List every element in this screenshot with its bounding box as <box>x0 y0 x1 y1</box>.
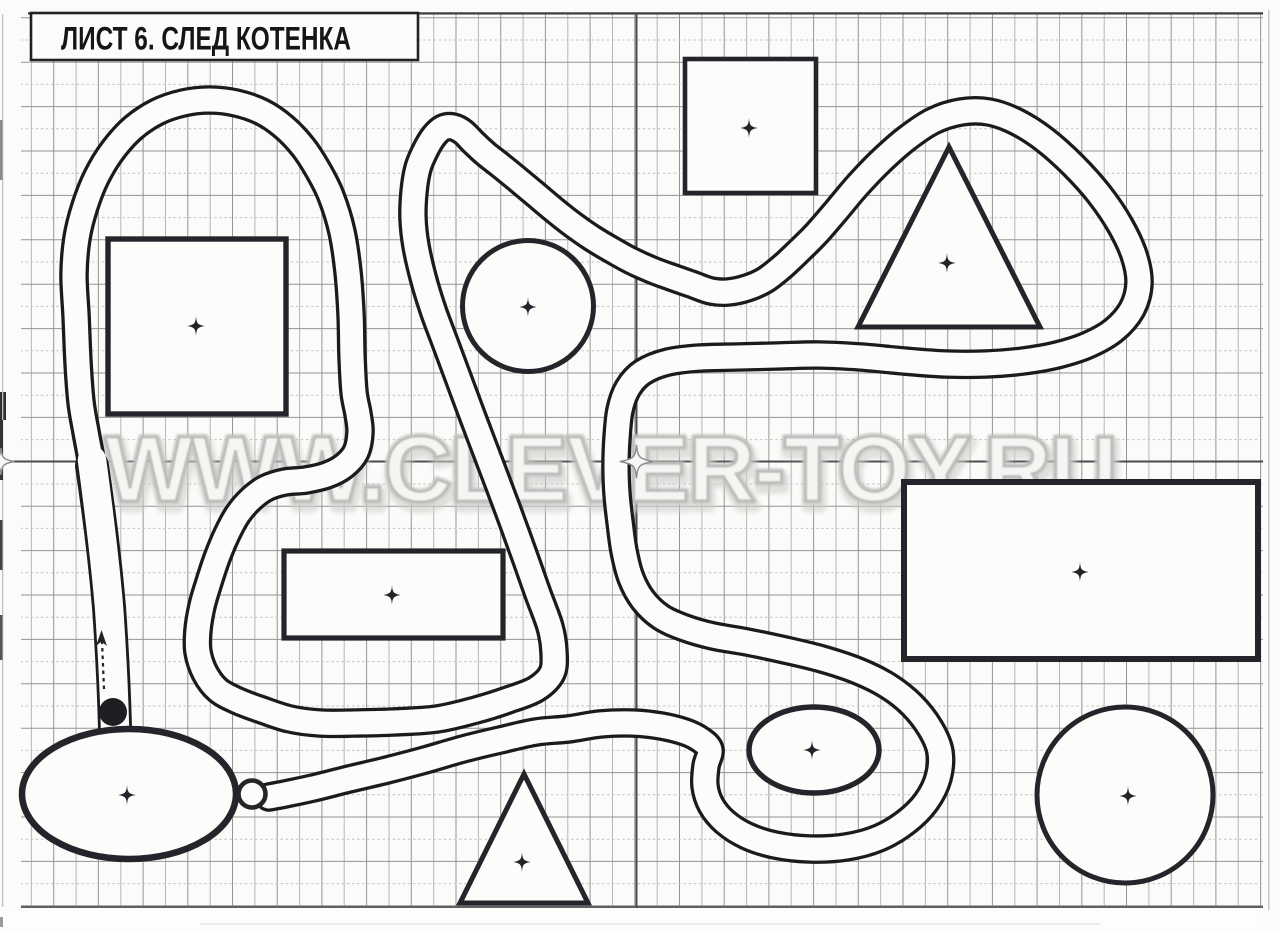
svg-text:ЛИСТ 6. СЛЕД КОТЕНКА: ЛИСТ 6. СЛЕД КОТЕНКА <box>61 21 351 57</box>
